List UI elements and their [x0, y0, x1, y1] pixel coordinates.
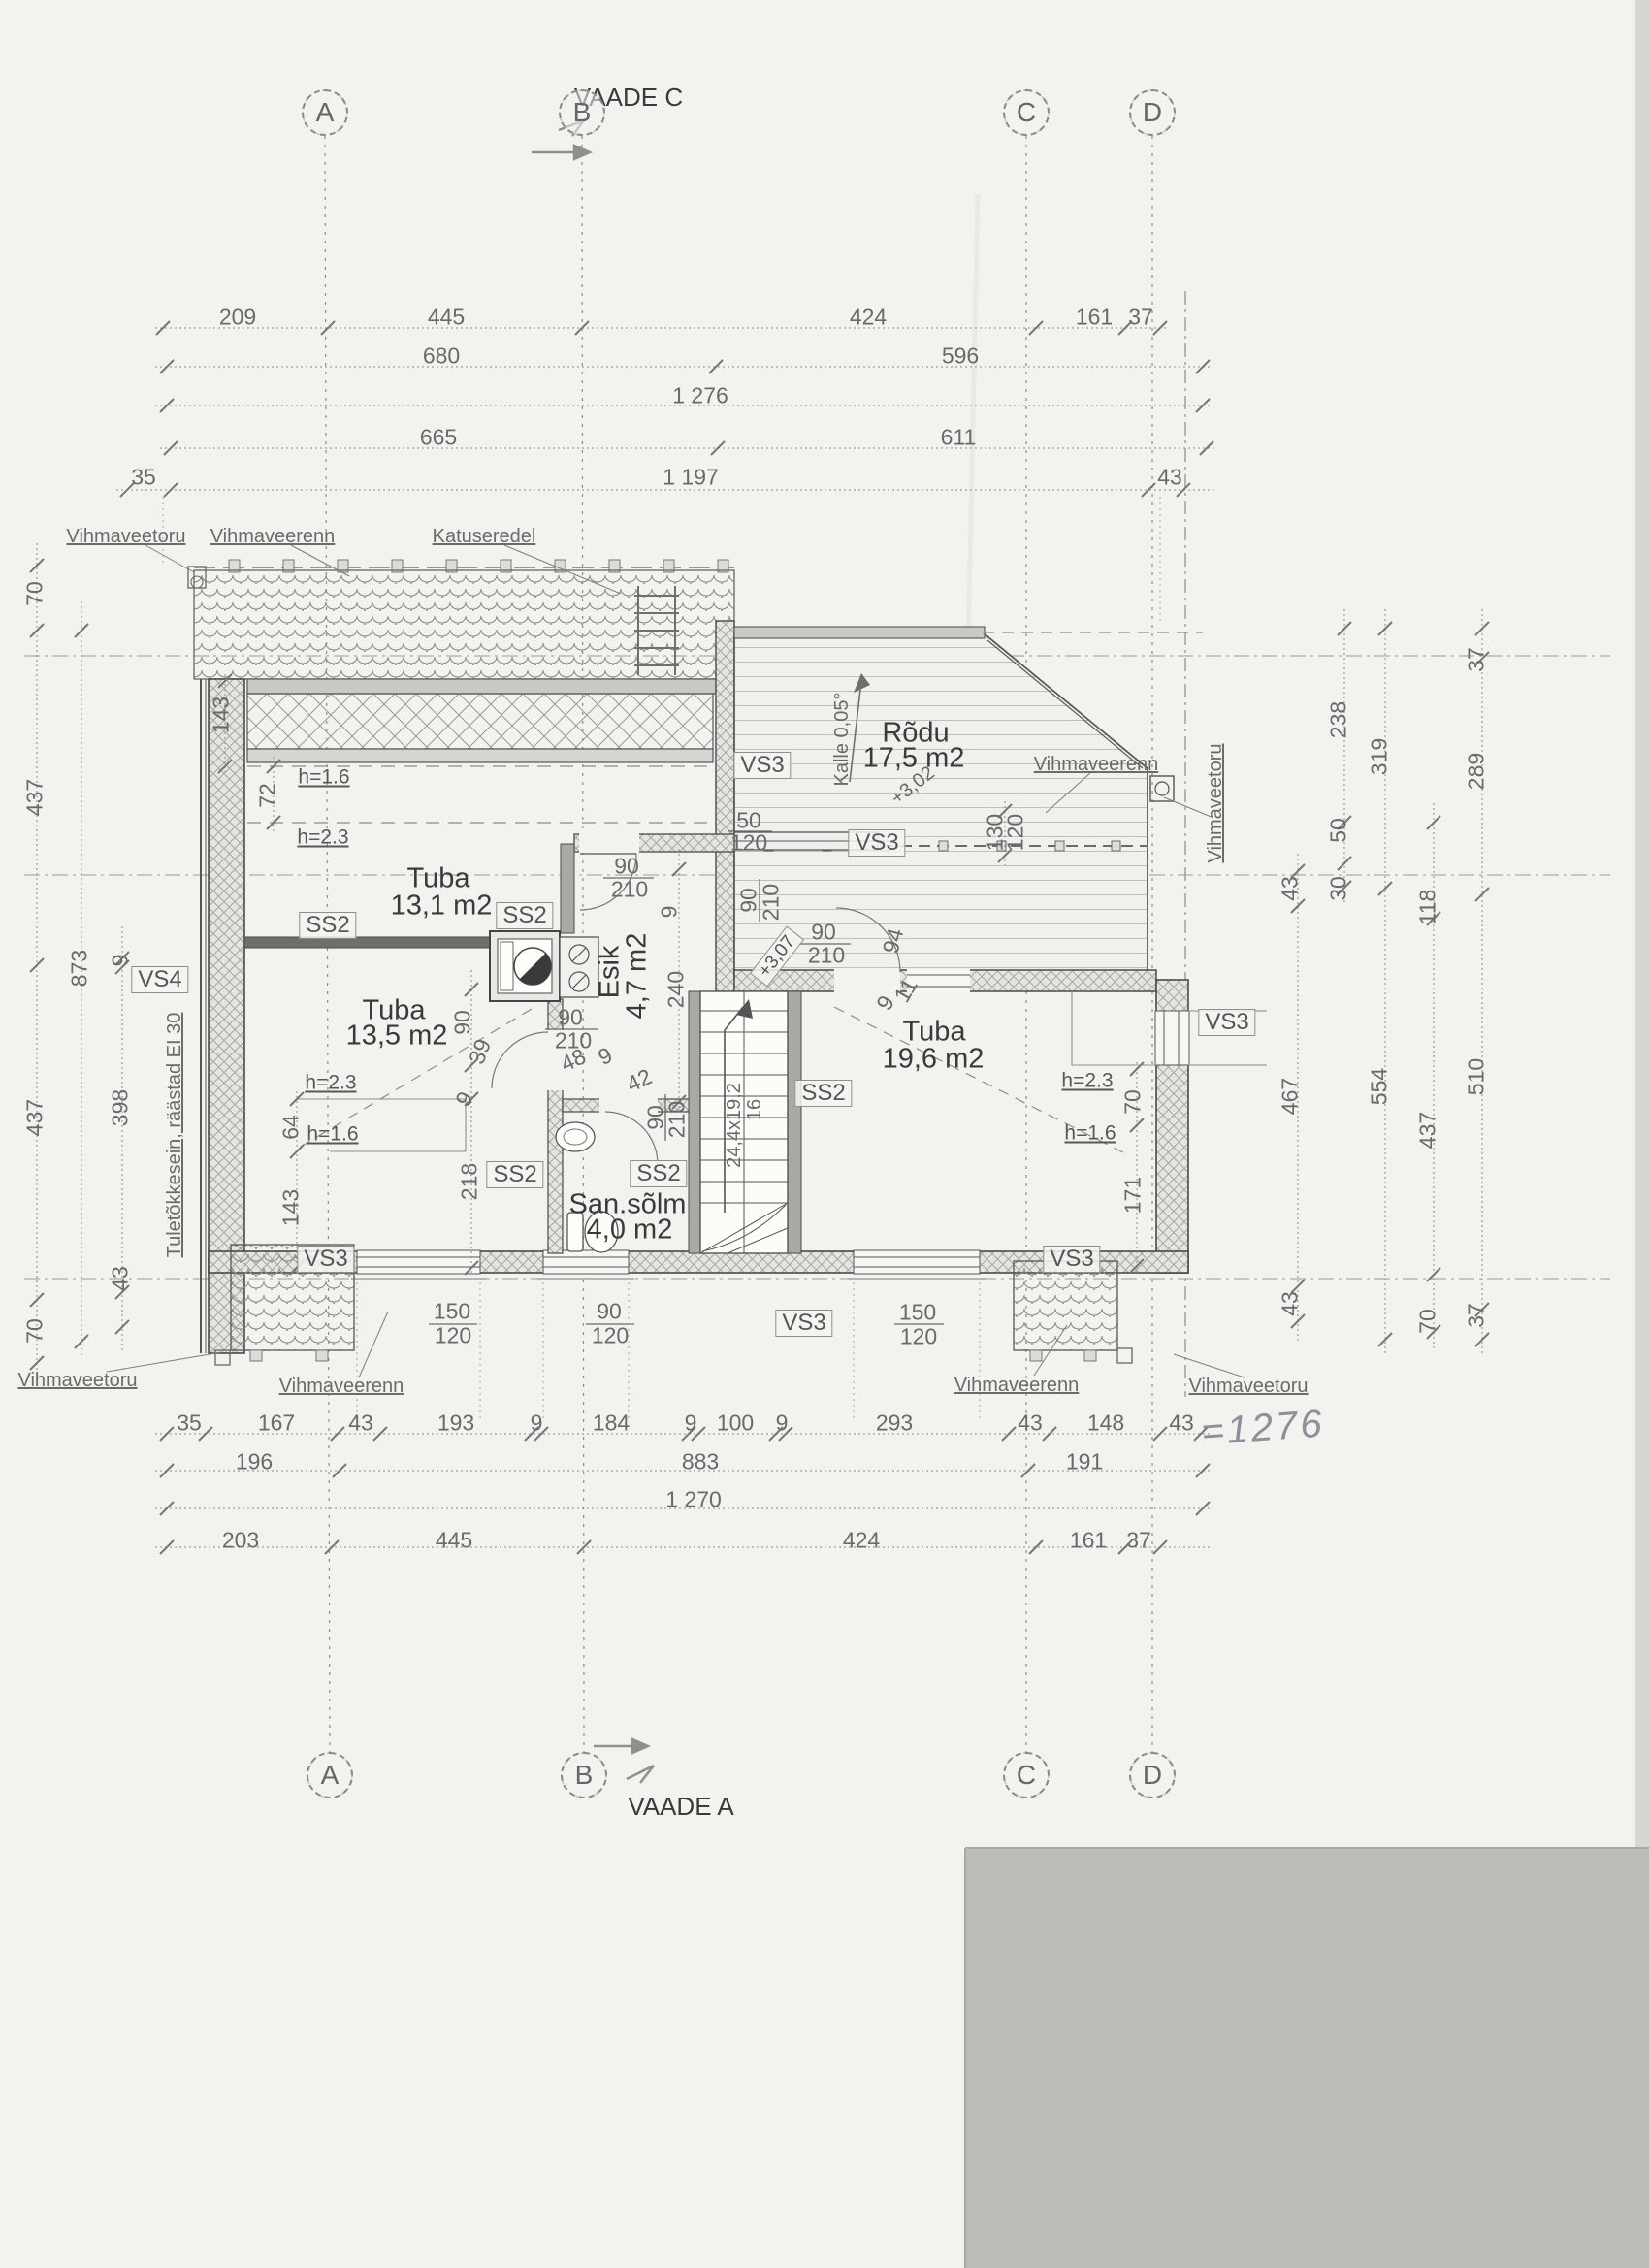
- dim-120-balc: 120: [1005, 814, 1027, 851]
- room-tuba2-area: 13,5 m2: [346, 1022, 448, 1051]
- dim-70-niche: 70: [1122, 1089, 1145, 1115]
- view-label-bottom: VAADE A: [628, 1794, 733, 1819]
- dim-9-esik: 9: [659, 906, 681, 919]
- dim-64: 64: [280, 1115, 303, 1140]
- win-150a: 150: [434, 1301, 470, 1323]
- dim-42: 42: [624, 1065, 656, 1096]
- dim-bot-184: 184: [593, 1412, 630, 1435]
- dim-143a: 143: [210, 697, 233, 733]
- dim-bot-148: 148: [1087, 1412, 1124, 1435]
- h-label-16b: h=1.6: [307, 1124, 358, 1145]
- dim-right-554: 554: [1369, 1068, 1391, 1105]
- note-vihmaveerenn-br: Vihmaveerenn: [954, 1376, 1080, 1395]
- dim-top-665: 665: [420, 427, 457, 449]
- dim-left-437b: 437: [24, 1099, 47, 1136]
- dim-right-510: 510: [1466, 1058, 1488, 1095]
- room-esik-area: 4,7 m2: [624, 933, 652, 1020]
- dim-right-30: 30: [1328, 876, 1350, 901]
- tag-vs3-br: VS3: [1043, 1246, 1100, 1273]
- dim-bot-9a: 9: [531, 1412, 543, 1435]
- dim-right-37b: 37: [1466, 1303, 1488, 1328]
- dim-bot-1270: 1 270: [665, 1489, 722, 1511]
- dim-bot-883: 883: [682, 1451, 719, 1474]
- h-label-16a: h=1.6: [298, 767, 349, 788]
- tag-vs3-balc1: VS3: [733, 752, 791, 779]
- h-label-23a: h=2.3: [297, 827, 348, 848]
- h-label-16c: h=1.6: [1064, 1123, 1115, 1144]
- win-50-120: 120: [730, 832, 767, 855]
- win-150c: 150: [899, 1302, 936, 1324]
- win-120a: 120: [435, 1325, 471, 1347]
- dim-right-118: 118: [1417, 890, 1439, 925]
- dim-bot-43b: 43: [1018, 1412, 1043, 1435]
- tag-vs3-balc2: VS3: [848, 829, 905, 857]
- dim-bot-100: 100: [717, 1412, 754, 1435]
- door-90b: 90: [558, 1007, 583, 1029]
- dim-right-238: 238: [1328, 701, 1350, 738]
- axis-a-top: A: [302, 89, 348, 136]
- room-tuba1-area: 13,1 m2: [391, 892, 493, 921]
- dim-bot-424: 424: [843, 1530, 880, 1552]
- tag-ss2-5: SS2: [794, 1080, 852, 1107]
- h-label-23c: h=2.3: [1061, 1071, 1113, 1091]
- dim-171-niche: 171: [1122, 1177, 1145, 1214]
- win-50: 50: [736, 810, 761, 832]
- dim-right-70: 70: [1417, 1309, 1439, 1334]
- dim-right-319: 319: [1369, 738, 1391, 775]
- dim-right-437: 437: [1417, 1112, 1439, 1149]
- dim-top-161: 161: [1076, 307, 1113, 329]
- dim-39: 39: [466, 1036, 495, 1067]
- dim-bot-293: 293: [876, 1412, 913, 1435]
- dim-top-1197: 1 197: [663, 467, 719, 489]
- tag-ss2-1: SS2: [299, 912, 356, 939]
- note-vihmaveerenn-t: Vihmaveerenn: [210, 527, 336, 546]
- dim-90-mid: 90: [452, 1010, 474, 1035]
- tag-vs3-right: VS3: [1198, 1009, 1255, 1036]
- dim-bot-43a: 43: [348, 1412, 373, 1435]
- door-210d: 210: [760, 884, 783, 921]
- axis-b-top: B: [559, 89, 605, 136]
- note-vihmaveetoru-tl: Vihmaveetoru: [66, 527, 185, 546]
- door-90d: 90: [738, 888, 760, 913]
- tag-vs3-bl: VS3: [297, 1246, 354, 1273]
- dim-bot-37: 37: [1126, 1530, 1151, 1552]
- dim-bot-161: 161: [1070, 1530, 1107, 1552]
- dim-right-289: 289: [1466, 753, 1488, 790]
- tag-vs4: VS4: [131, 966, 188, 993]
- dim-top-611: 611: [941, 427, 977, 449]
- dim-left-70b: 70: [24, 1318, 47, 1344]
- room-tuba3-name: Tuba: [902, 1019, 965, 1047]
- dim-top-596: 596: [942, 345, 979, 368]
- dim-94: 94: [880, 926, 908, 956]
- dim-bot-9c: 9: [776, 1412, 789, 1435]
- dim-bot-9b: 9: [685, 1412, 697, 1435]
- dim-bot-196: 196: [236, 1451, 273, 1474]
- tag-ss2-2: SS2: [496, 902, 553, 929]
- dim-143b: 143: [280, 1189, 303, 1226]
- elev-307: +3,07: [750, 925, 804, 987]
- dim-top-680: 680: [423, 345, 460, 368]
- axis-a-bottom: A: [307, 1752, 353, 1798]
- dim-right-50: 50: [1328, 818, 1350, 843]
- dim-left-9: 9: [110, 955, 132, 967]
- note-vihmaveetoru-br: Vihmaveetoru: [1188, 1377, 1308, 1396]
- dim-left-70a: 70: [24, 581, 47, 606]
- dim-top-1276: 1 276: [672, 385, 728, 407]
- room-tuba1-name: Tuba: [406, 865, 469, 893]
- dim-9-mid: 9: [452, 1088, 477, 1111]
- room-rodu-area: 17,5 m2: [863, 745, 965, 773]
- door-210b: 210: [555, 1030, 592, 1053]
- note-vihmaveetoru-bl: Vihmaveetoru: [17, 1371, 137, 1390]
- annotation-layer: VAADE CVAADE AABCDABCD209445424161376805…: [0, 0, 1649, 2268]
- dim-bot-191: 191: [1066, 1451, 1103, 1474]
- win-120c: 120: [900, 1326, 937, 1348]
- room-sansolm-area: 4,0 m2: [587, 1216, 673, 1245]
- dim-bot-203: 203: [222, 1530, 259, 1552]
- slope-label: Kalle 0,05°: [832, 693, 852, 787]
- dim-bot-43c: 43: [1169, 1412, 1194, 1435]
- tag-vs3-bot: VS3: [775, 1310, 832, 1337]
- note-vihmaveerenn-bl: Vihmaveerenn: [279, 1377, 404, 1396]
- dim-right-37a: 37: [1466, 647, 1488, 672]
- door-210a: 210: [611, 879, 648, 901]
- dim-9-door: 9: [595, 1044, 615, 1069]
- note-firewall: Tuletõkkesein, räästad EI 30: [165, 1013, 184, 1258]
- dim-left-437a: 437: [24, 779, 47, 816]
- stair-count: 16: [745, 1099, 764, 1120]
- dim-right-43a: 43: [1279, 876, 1302, 901]
- dim-72: 72: [257, 783, 279, 808]
- win-90b: 90: [597, 1301, 622, 1323]
- stair-step-size: 24,4x19,2: [725, 1083, 744, 1168]
- dim-bot-445: 445: [436, 1530, 472, 1552]
- axis-d-top: D: [1129, 89, 1176, 136]
- dim-240: 240: [665, 971, 688, 1008]
- dim-218: 218: [459, 1163, 481, 1200]
- h-label-23b: h=2.3: [305, 1073, 356, 1093]
- dim-bot-193: 193: [437, 1412, 474, 1435]
- dim-top-424: 424: [850, 307, 887, 329]
- dim-left-398: 398: [110, 1089, 132, 1126]
- axis-c-bottom: C: [1003, 1752, 1050, 1798]
- dim-top-37: 37: [1128, 307, 1153, 329]
- axis-d-bottom: D: [1129, 1752, 1176, 1798]
- door-210e: 210: [666, 1101, 689, 1138]
- note-katuseredel: Katuseredel: [433, 527, 536, 546]
- dim-left-43: 43: [110, 1266, 132, 1291]
- room-esik-name: Esik: [597, 946, 625, 999]
- dim-top-209: 209: [219, 307, 256, 329]
- room-tuba3-area: 19,6 m2: [883, 1046, 985, 1074]
- dim-top-43: 43: [1157, 467, 1182, 489]
- axis-b-bottom: B: [561, 1752, 607, 1798]
- note-vihmaveetoru-r: Vihmaveetoru: [1206, 743, 1225, 862]
- door-90c: 90: [811, 922, 836, 944]
- dim-right-43b: 43: [1279, 1291, 1302, 1316]
- scanned-floor-plan-page: VAADE CVAADE AABCDABCD209445424161376805…: [0, 0, 1649, 2268]
- door-210c: 210: [808, 945, 845, 967]
- dim-bot-167: 167: [258, 1412, 295, 1435]
- dim-right-467: 467: [1279, 1078, 1302, 1115]
- door-90a: 90: [614, 856, 639, 878]
- win-120b: 120: [592, 1325, 629, 1347]
- handwritten-note: =1276: [1200, 1405, 1326, 1452]
- tag-ss2-3: SS2: [486, 1161, 543, 1188]
- dim-top-35: 35: [131, 467, 156, 489]
- dim-left-873: 873: [69, 950, 91, 987]
- dim-bot-35: 35: [177, 1412, 202, 1435]
- dim-top-445: 445: [428, 307, 465, 329]
- axis-c-top: C: [1003, 89, 1050, 136]
- note-vihmaveerenn-balc: Vihmaveerenn: [1034, 755, 1159, 774]
- tag-ss2-4: SS2: [630, 1160, 687, 1187]
